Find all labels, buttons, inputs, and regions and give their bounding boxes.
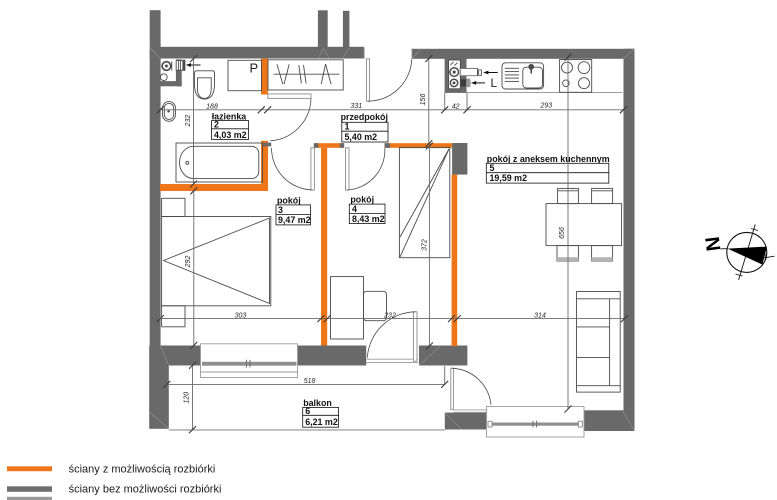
svg-text:2: 2 [214,120,219,130]
svg-text:292: 292 [185,256,192,269]
svg-text:293: 293 [539,103,552,110]
svg-text:156: 156 [420,94,427,106]
svg-text:120: 120 [184,392,191,404]
svg-text:5,40 m2: 5,40 m2 [345,132,378,142]
svg-text:372: 372 [422,239,429,251]
svg-text:4: 4 [352,204,357,214]
svg-text:4,03 m2: 4,03 m2 [214,130,247,140]
svg-text:1: 1 [345,122,350,132]
svg-text:ściany z możliwością rozbiórki: ściany z możliwością rozbiórki [69,464,216,476]
svg-text:19,59 m2: 19,59 m2 [490,173,528,183]
svg-text:518: 518 [304,378,316,385]
svg-text:6: 6 [305,406,310,416]
svg-text:9,47 m2: 9,47 m2 [278,215,311,225]
svg-text:656: 656 [559,227,566,239]
svg-text:42: 42 [452,103,460,110]
svg-text:P: P [250,61,259,76]
svg-text:188: 188 [206,103,218,110]
svg-text:8,43 m2: 8,43 m2 [352,214,385,224]
svg-text:331: 331 [350,103,362,110]
svg-text:5: 5 [490,163,495,173]
svg-text:3: 3 [278,205,283,215]
svg-text:232: 232 [383,312,396,319]
svg-text:232: 232 [185,115,192,128]
svg-text:ściany bez możliwości rozbiórk: ściany bez możliwości rozbiórki [69,484,222,496]
svg-text:pokój z aneksem kuchennym: pokój z aneksem kuchennym [487,154,610,164]
svg-text:N: N [702,235,726,252]
svg-text:L: L [491,76,498,90]
svg-text:6,21 m2: 6,21 m2 [305,417,338,427]
svg-text:303: 303 [235,312,247,319]
svg-text:314: 314 [534,312,546,319]
svg-text:przedpokój: przedpokój [341,112,388,122]
